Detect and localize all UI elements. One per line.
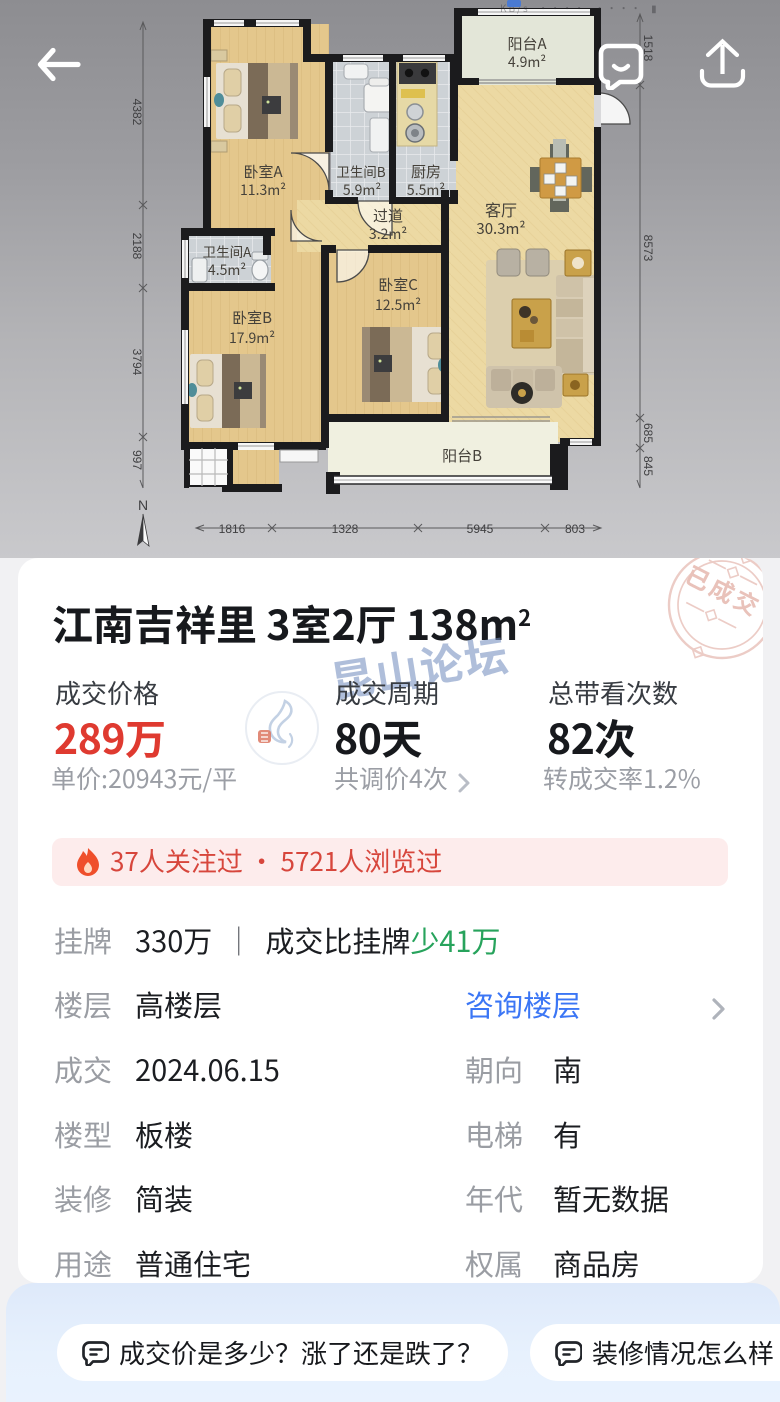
svg-text:2188: 2188 xyxy=(130,233,144,260)
svg-text:卧室A: 卧室A xyxy=(243,161,283,182)
svg-text:1816: 1816 xyxy=(219,522,246,536)
svg-text:卫生间B: 卫生间B xyxy=(336,161,385,181)
svg-text:5.5m²: 5.5m² xyxy=(407,180,445,200)
svg-text:阳台B: 阳台B xyxy=(442,445,482,466)
svg-text:5.9m²: 5.9m² xyxy=(343,180,381,200)
svg-text:4.9m²: 4.9m² xyxy=(508,52,546,72)
svg-text:N: N xyxy=(138,497,148,513)
svg-text:8573: 8573 xyxy=(641,235,655,262)
svg-text:3794: 3794 xyxy=(130,349,144,376)
svg-text:30.3m²: 30.3m² xyxy=(476,218,525,239)
svg-text:已成交: 已成交 xyxy=(680,558,763,624)
svg-text:997: 997 xyxy=(130,450,144,470)
svg-text:5945: 5945 xyxy=(467,522,494,536)
svg-text:845: 845 xyxy=(641,456,655,476)
svg-text:4382: 4382 xyxy=(130,99,144,126)
svg-text:1328: 1328 xyxy=(332,522,359,536)
svg-text:17.9m²: 17.9m² xyxy=(229,328,275,348)
svg-text:厨房: 厨房 xyxy=(411,161,441,182)
svg-text:卧室C: 卧室C xyxy=(378,274,418,295)
svg-text:卧室B: 卧室B xyxy=(232,307,272,328)
svg-text:3.2m²: 3.2m² xyxy=(369,224,407,244)
svg-text:12.5m²: 12.5m² xyxy=(375,295,421,315)
svg-text:过道: 过道 xyxy=(373,205,403,226)
svg-text:阳台A: 阳台A xyxy=(507,33,547,54)
svg-text:卫生间A: 卫生间A xyxy=(203,241,252,261)
svg-text:803: 803 xyxy=(565,522,585,536)
svg-text:685: 685 xyxy=(641,423,655,443)
svg-text:4.5m²: 4.5m² xyxy=(208,260,246,280)
svg-text:11.3m²: 11.3m² xyxy=(240,180,286,200)
